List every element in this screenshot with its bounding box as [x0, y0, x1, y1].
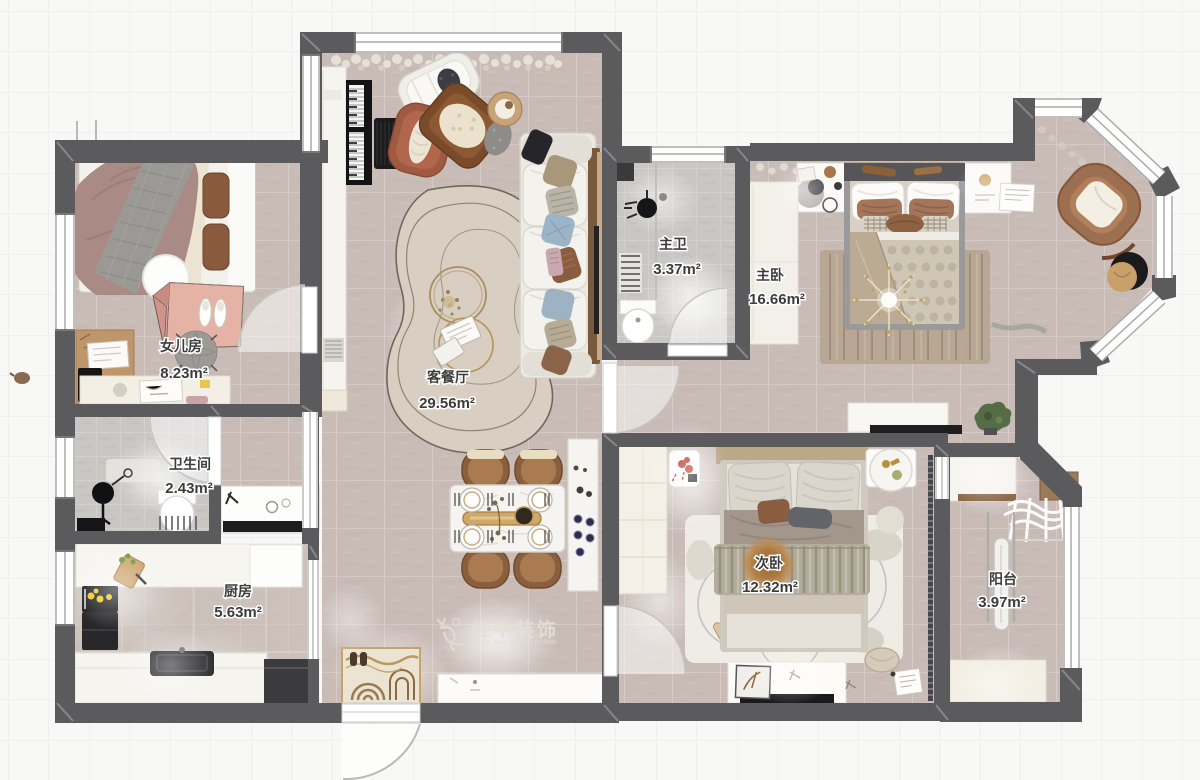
svg-text:卫生间: 卫生间: [169, 456, 211, 472]
svg-text:5.63m²: 5.63m²: [214, 604, 262, 621]
svg-text:客餐厅: 客餐厅: [426, 369, 469, 385]
svg-text:厨房: 厨房: [224, 583, 252, 599]
svg-text:16.66m²: 16.66m²: [749, 291, 805, 308]
svg-text:红牛装饰: 红牛装饰: [471, 618, 558, 641]
svg-text:29.56m²: 29.56m²: [419, 395, 475, 412]
svg-text:12.32m²: 12.32m²: [742, 579, 798, 596]
svg-text:HONG NIU DECORATION: HONG NIU DECORATION: [471, 640, 556, 646]
svg-text:女儿房: 女儿房: [160, 338, 202, 354]
svg-text:次卧: 次卧: [755, 555, 783, 571]
svg-text:主卫: 主卫: [659, 236, 687, 252]
svg-text:3.97m²: 3.97m²: [978, 594, 1026, 611]
svg-text:主卧: 主卧: [756, 267, 784, 283]
svg-text:3.37m²: 3.37m²: [653, 261, 701, 278]
svg-text:阳台: 阳台: [989, 571, 1017, 587]
svg-text:2.43m²: 2.43m²: [165, 480, 213, 497]
svg-text:8.23m²: 8.23m²: [160, 365, 208, 382]
